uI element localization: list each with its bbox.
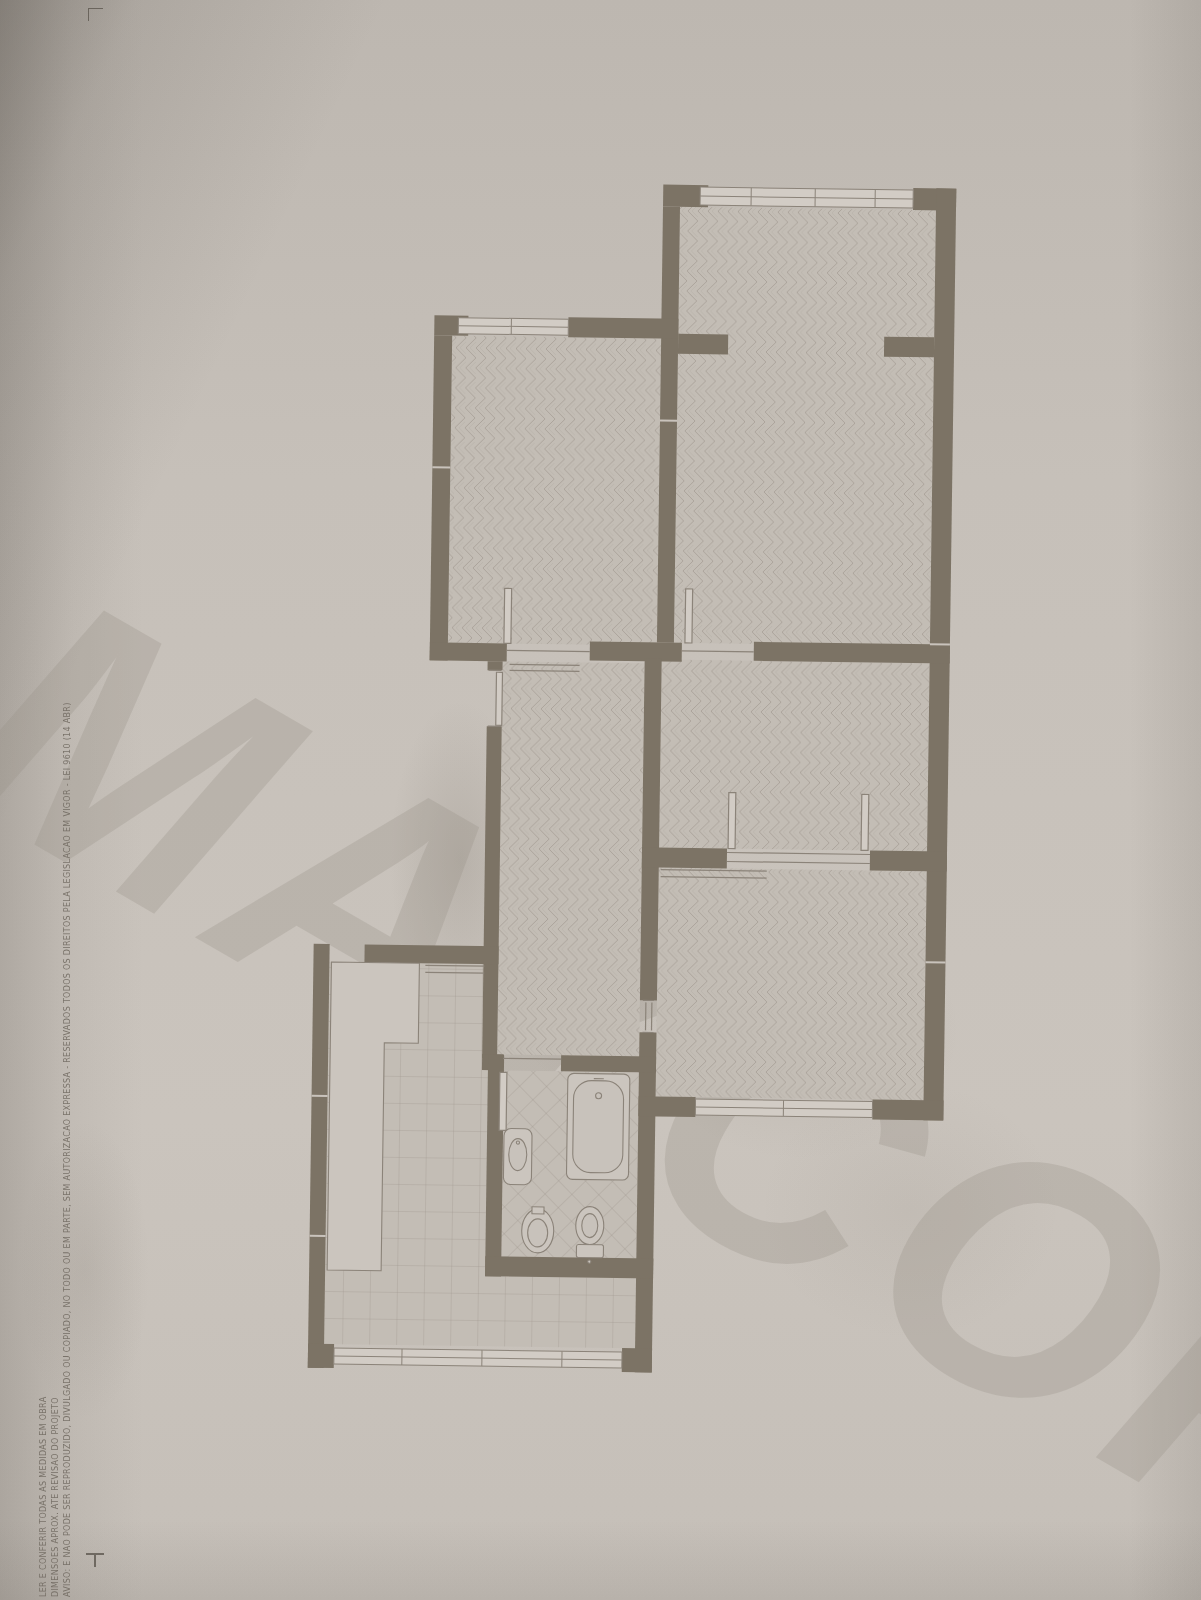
wall-stub-right <box>884 337 934 358</box>
door-leaf <box>861 794 869 850</box>
room-middle-right-parquet <box>659 660 930 852</box>
crop-corner-mark <box>88 8 103 21</box>
door-leaf <box>728 793 736 849</box>
wall <box>622 1348 652 1372</box>
wall <box>590 642 682 662</box>
door-threshold <box>682 651 754 652</box>
door-leaf <box>685 589 693 643</box>
door-threshold <box>507 650 590 651</box>
wall-stub <box>488 661 503 670</box>
margin-annotation-text: LER E CONFERIR TODAS AS MEDIDAS EM OBRA … <box>38 617 74 1597</box>
floor-plan-drawing: MAYCOR <box>0 0 1201 1600</box>
bathtub <box>566 1073 629 1180</box>
fold-tick-vertical <box>94 1553 96 1567</box>
wall-kitchen-top <box>364 944 498 964</box>
window-top-left <box>458 318 568 336</box>
wall <box>568 317 678 339</box>
scanned-paper-background: MAYCOR <box>0 0 1201 1600</box>
margin-line-1: LER E CONFERIR TODAS AS MEDIDAS EM OBRA <box>38 617 50 1597</box>
door-leaf <box>504 588 512 643</box>
wall-bathroom-bottom <box>485 1256 653 1278</box>
wall <box>642 847 727 868</box>
margin-line-3: AVISO: E NAO PODE SER REPRODUZIDO, DIVUL… <box>62 617 74 1597</box>
room-top-right-parquet <box>674 207 936 647</box>
wall <box>872 1100 943 1121</box>
window-kitchen <box>334 1348 622 1368</box>
wall <box>430 642 507 661</box>
wall <box>754 642 950 664</box>
fold-tick-mark <box>86 1553 104 1567</box>
wall <box>638 1096 695 1117</box>
toilet <box>575 1206 604 1263</box>
wall <box>870 850 947 871</box>
wall <box>308 1344 334 1368</box>
window-top-right <box>700 187 913 208</box>
door-leaf <box>496 672 503 725</box>
wall-bathroom-top <box>561 1055 656 1072</box>
door-leaf <box>499 1072 507 1130</box>
room-top-left-parquet <box>448 336 661 646</box>
room-bottom-right-parquet <box>656 868 927 1101</box>
margin-line-2: DIMENSOES APROX. ATE REVISAO DO PROJETO <box>50 617 62 1597</box>
wall-stub-left <box>678 334 728 355</box>
hallway-parquet <box>497 661 644 1056</box>
washbasin <box>503 1128 532 1184</box>
entry-door <box>488 670 503 726</box>
